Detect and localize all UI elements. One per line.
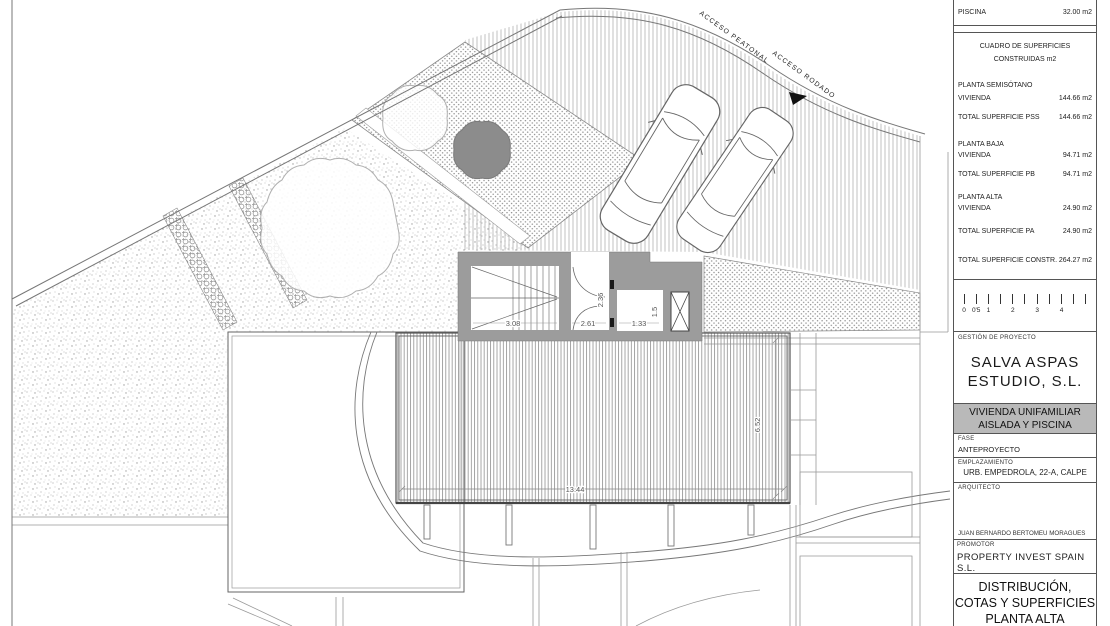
- phase-box: FASE ANTEPROYECTO: [954, 434, 1096, 458]
- promotor-label: PROMOTOR: [957, 542, 1093, 548]
- arquitecto-label: ARQUITECTO: [958, 485, 1092, 491]
- surface-row-label: TOTAL SUPERFICIE CONSTR.: [958, 255, 1057, 266]
- piscina-label: PISCINA: [958, 9, 986, 16]
- shrub: [454, 121, 511, 178]
- piscina-row: PISCINA 32.00 m2: [954, 0, 1096, 26]
- piscina-value: 32.00 m2: [1063, 9, 1092, 16]
- scale-bar: 0 0'5 1 2 3 4: [954, 280, 1096, 332]
- surface-row-label: VIVIENDA: [958, 93, 991, 104]
- architect-box: ARQUITECTO JUAN BERNARDO BERTOMEU MORAGU…: [954, 483, 1096, 540]
- fase-label: FASE: [958, 436, 1092, 442]
- scale-ticks: [964, 294, 1086, 304]
- surface-row-label: TOTAL SUPERFICIE PA: [958, 226, 1034, 237]
- company-name-line1: SALVA ASPAS: [958, 353, 1092, 372]
- surfaces-title-2: CONSTRUIDAS m2: [958, 53, 1092, 66]
- drawing-title-line3: PLANTA ALTA: [954, 611, 1096, 626]
- dim-hall-height: 2.36: [596, 293, 605, 308]
- surface-row-label: PLANTA SEMISÓTANO: [958, 80, 1032, 91]
- title-block: PISCINA 32.00 m2 CUADRO DE SUPERFICIES C…: [953, 0, 1097, 626]
- surface-row-value: 94.71 m2: [1063, 169, 1092, 180]
- drawing-title-box: DISTRIBUCIÓN, COTAS Y SUPERFICIES PLANTA…: [954, 574, 1096, 626]
- door-jamb-2: [610, 318, 614, 327]
- promotor-value: PROPERTY INVEST SPAIN S.L.: [957, 552, 1093, 574]
- scale-label: 3: [1035, 307, 1039, 314]
- project-title-line1: VIVIENDA UNIFAMILIAR: [954, 406, 1096, 419]
- dim-room-height: 6.52: [753, 418, 762, 433]
- scale-label: 0'5: [972, 307, 980, 314]
- company-name-line2: ESTUDIO, S.L.: [958, 372, 1092, 391]
- emplazamiento-value: URB. EMPEDROLA, 22-A, CALPE: [958, 468, 1092, 477]
- surface-row-label: TOTAL SUPERFICIE PSS: [958, 112, 1040, 123]
- dim-room-width: 13.44: [566, 485, 585, 494]
- promoter-box: PROMOTOR PROPERTY INVEST SPAIN S.L.: [954, 540, 1096, 574]
- surface-row-value: 24.90 m2: [1063, 226, 1092, 237]
- surface-row-label: VIVIENDA: [958, 203, 991, 214]
- surface-row-value: 24.90 m2: [1063, 203, 1092, 214]
- dim-lobby-height: 1.5: [650, 307, 659, 317]
- surface-row-value: 144.66 m2: [1059, 112, 1092, 123]
- scale-label: 2: [1011, 307, 1015, 314]
- dim-stair-width: 3.08: [506, 319, 521, 328]
- surface-row-value: 264.27 m2: [1059, 255, 1092, 266]
- surfaces-title-1: CUADRO DE SUPERFICIES: [958, 40, 1092, 53]
- floor-plan-sheet: ACCESO PEATONAL ACCESO RODADO 13.44: [0, 0, 1110, 626]
- small-tree: [383, 85, 448, 150]
- emplazamiento-label: EMPLAZAMIENTO: [958, 460, 1092, 466]
- fase-value: ANTEPROYECTO: [958, 445, 1092, 454]
- surface-row-value: 144.66 m2: [1059, 93, 1092, 104]
- dim-lobby-width: 1.33: [632, 319, 647, 328]
- drawing-title-line1: DISTRIBUCIÓN,: [954, 579, 1096, 595]
- project-management-box: GESTIÓN DE PROYECTO SALVA ASPAS ESTUDIO,…: [954, 332, 1096, 404]
- surface-row-label: VIVIENDA: [958, 150, 991, 161]
- staircase-core: 3.08 2.61 2.36 1.33 1.5: [458, 252, 702, 341]
- surface-row-value: 94.71 m2: [1063, 150, 1092, 161]
- scale-label: 1: [987, 307, 991, 314]
- scale-label: 0: [962, 307, 966, 314]
- elevator-shaft: [671, 292, 689, 331]
- location-box: EMPLAZAMIENTO URB. EMPEDROLA, 22-A, CALP…: [954, 458, 1096, 483]
- scale-labels: 0 0'5 1 2 3 4: [964, 307, 1086, 316]
- scale-label: 4: [1060, 307, 1064, 314]
- surface-row-label: TOTAL SUPERFICIE PB: [958, 169, 1035, 180]
- door-jamb-1: [610, 280, 614, 289]
- title-block-divider: [954, 26, 1096, 33]
- arquitecto-name: JUAN BERNARDO BERTOMEU MORAGUES: [958, 530, 1092, 537]
- project-title-line2: AISLADA Y PISCINA: [954, 419, 1096, 432]
- dim-hall-width: 2.61: [581, 319, 596, 328]
- gestion-label: GESTIÓN DE PROYECTO: [958, 335, 1092, 341]
- drawing-title-line2: COTAS Y SUPERFICIES: [954, 595, 1096, 611]
- surfaces-table: CUADRO DE SUPERFICIES CONSTRUIDAS m2 PLA…: [954, 33, 1096, 280]
- project-title-box: VIVIENDA UNIFAMILIAR AISLADA Y PISCINA: [954, 404, 1096, 434]
- surface-row-label: PLANTA BAJA: [958, 139, 1004, 150]
- site-plan-drawing: ACCESO PEATONAL ACCESO RODADO 13.44: [0, 0, 953, 626]
- surface-row-label: PLANTA ALTA: [958, 192, 1002, 203]
- upper-room: 13.44 6.52: [396, 333, 816, 505]
